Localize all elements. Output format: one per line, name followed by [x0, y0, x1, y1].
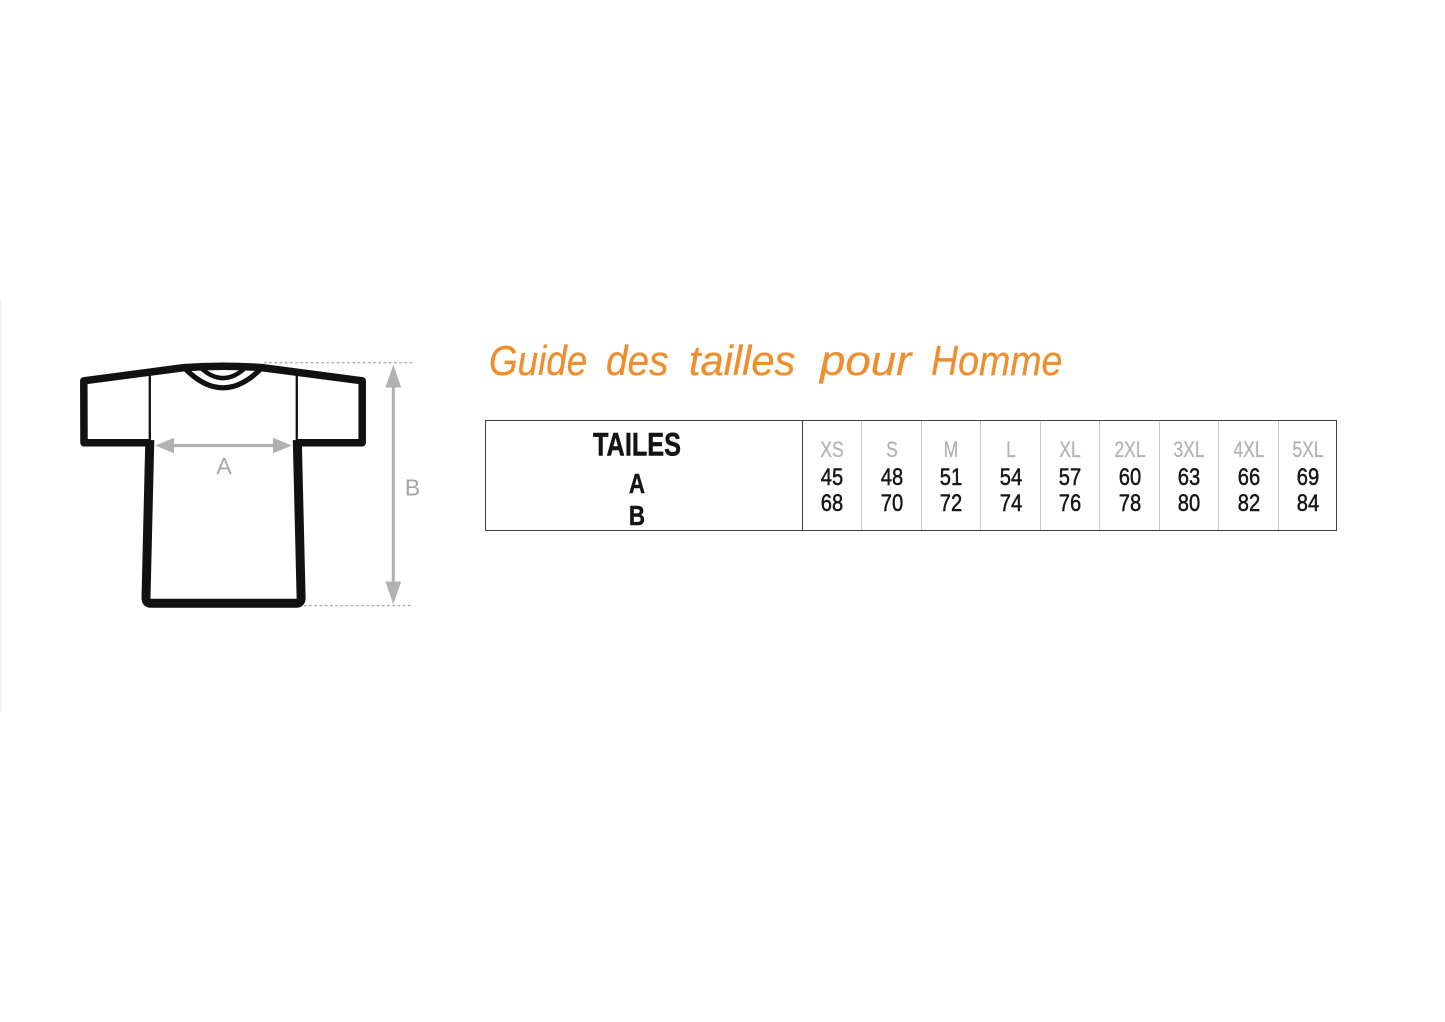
svg-text:A: A	[216, 453, 232, 479]
svg-text:B: B	[405, 475, 420, 501]
